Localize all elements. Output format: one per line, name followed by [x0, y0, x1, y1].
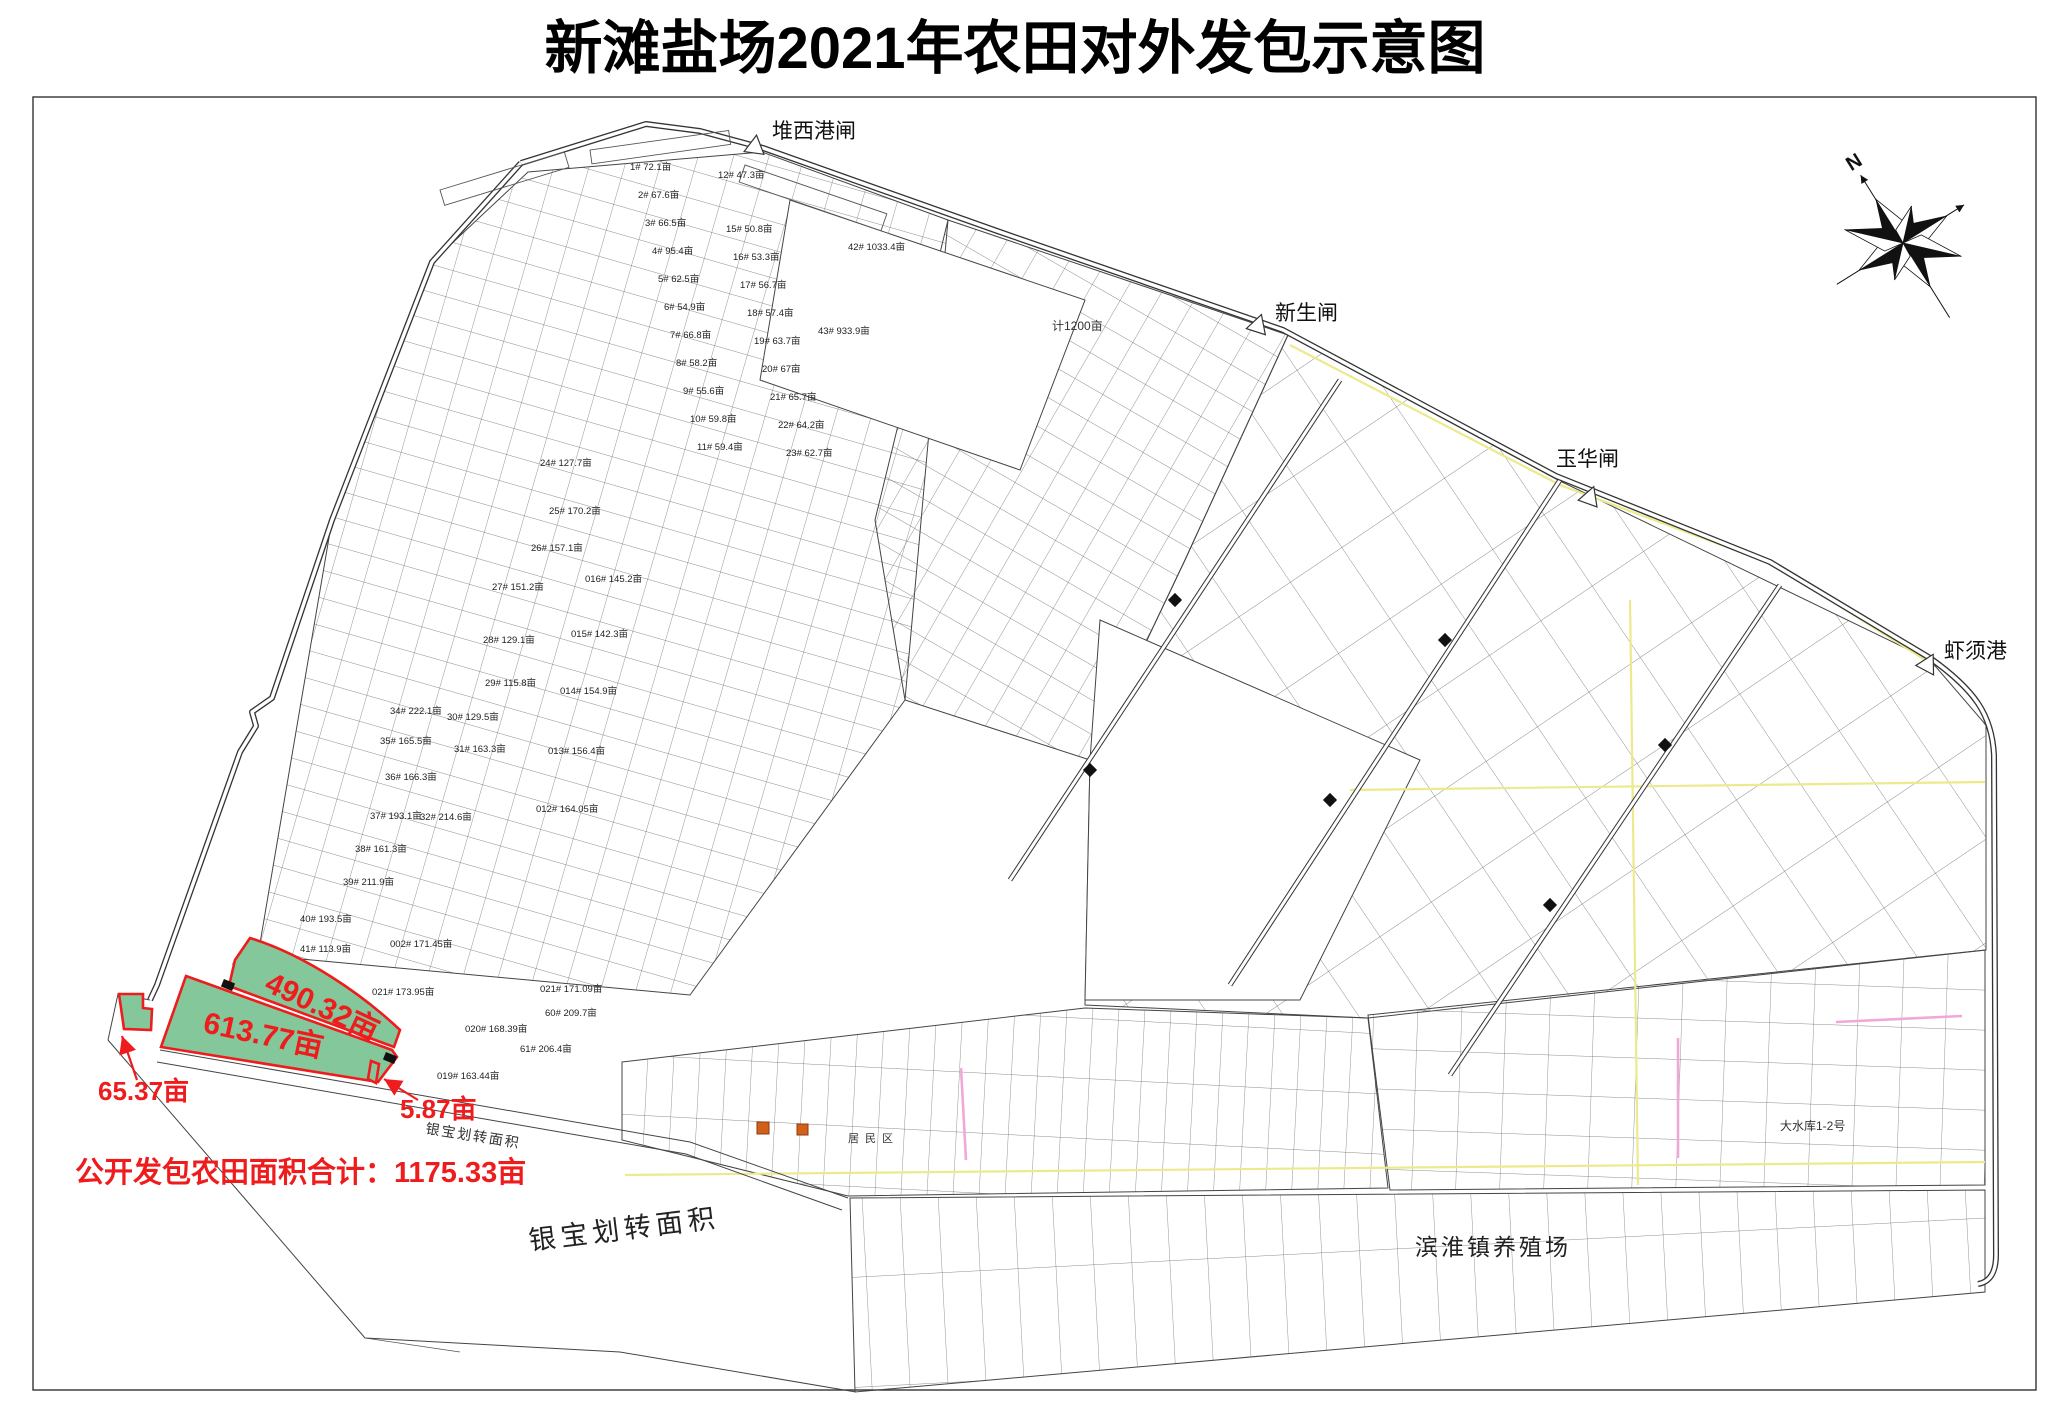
parcel-label: 021# 173.95亩 — [372, 986, 434, 998]
parcel-label: 27# 151.2亩 — [492, 581, 544, 593]
parcel-label: 10# 59.8亩 — [690, 413, 736, 425]
parcel-label: 21# 65.7亩 — [770, 391, 816, 403]
parcel-label: 28# 129.1亩 — [483, 634, 535, 646]
parcel-label: 12# 47.3亩 — [718, 169, 764, 181]
parcel-label: 3# 66.5亩 — [645, 217, 686, 229]
parcel-label: 60# 209.7亩 — [545, 1007, 597, 1019]
parcel-label: 31# 163.3亩 — [454, 743, 506, 755]
parcel-label: 29# 115.8亩 — [485, 677, 536, 689]
parcel-label: 30# 129.5亩 — [447, 711, 499, 723]
parcel-label: 20# 67亩 — [762, 363, 801, 375]
building-granary-icon — [797, 1124, 808, 1135]
parcel-label: 15# 50.8亩 — [726, 223, 772, 235]
parcel-label: 18# 57.4亩 — [747, 307, 793, 319]
parcel-label: 2# 67.6亩 — [638, 189, 679, 201]
parcel-label: 19# 63.7亩 — [754, 335, 800, 347]
area-label-5: 5.87亩 — [400, 1094, 477, 1124]
region-label-binhuai: 滨淮镇养殖场 — [1415, 1234, 1571, 1260]
parcel-label: 020# 168.39亩 — [465, 1023, 527, 1035]
parcel-label: 016# 145.2亩 — [585, 573, 642, 585]
parcel-label: 24# 127.7亩 — [540, 457, 592, 469]
parcel-label: 43# 933.9亩 — [818, 325, 870, 337]
parcel-label: 42# 1033.4亩 — [848, 241, 905, 253]
parcel-label: 26# 157.1亩 — [531, 542, 583, 554]
parcel-label: 16# 53.3亩 — [733, 251, 779, 263]
map-canvas: 新滩盐场2021年农田对外发包示意图 — [0, 0, 2069, 1417]
parcel-label: 015# 142.3亩 — [571, 628, 628, 640]
parcel-label: 37# 193.1亩 — [370, 810, 422, 822]
gate-label-yuhua: 玉华闸 — [1556, 448, 1619, 471]
gate-label-xiaxugang: 虾须港 — [1944, 640, 2007, 663]
green-parcel-5 — [368, 1061, 379, 1083]
parcel-label: 4# 95.4亩 — [652, 245, 693, 257]
parcel-label: 17# 56.7亩 — [740, 279, 786, 291]
parcel-label: 013# 156.4亩 — [548, 745, 605, 757]
parcel-label: 25# 170.2亩 — [549, 505, 601, 517]
parcel-label: 9# 55.6亩 — [683, 385, 724, 397]
page-title: 新滩盐场2021年农田对外发包示意图 — [544, 16, 1485, 81]
parcel-label: 38# 161.3亩 — [355, 843, 407, 855]
summary-total-label: 公开发包农田面积合计：1175.33亩 — [75, 1155, 526, 1189]
parcel-label: 35# 165.5亩 — [380, 735, 432, 747]
parcel-label: 39# 211.9亩 — [343, 876, 394, 888]
parcel-label: 012# 164.05亩 — [536, 803, 598, 815]
parcel-label: 40# 193.5亩 — [300, 913, 352, 925]
parcel-label: 8# 58.2亩 — [676, 357, 717, 369]
parcel-label: 002# 171.45亩 — [390, 938, 452, 950]
parcel-label: 11# 59.4亩 — [697, 441, 743, 453]
map-page: 新滩盐场2021年农田对外发包示意图 — [0, 0, 2069, 1417]
region-label-total1200: 计1200亩 — [1052, 318, 1103, 333]
gate-label-duixigang: 堆西港闸 — [772, 120, 856, 143]
parcel-label: 36# 166.3亩 — [385, 771, 437, 783]
parcel-label: 22# 64.2亩 — [778, 419, 824, 431]
parcel-label: 021# 171.09亩 — [540, 983, 602, 995]
region-label-reservoir: 大水库1-2号 — [1780, 1118, 1845, 1133]
gate-label-xinsheng: 新生闸 — [1275, 302, 1338, 325]
parcel-label: 019# 163.44亩 — [437, 1070, 499, 1082]
area-label-65: 65.37亩 — [98, 1076, 189, 1106]
parcel-label: 34# 222.1亩 — [390, 705, 442, 717]
parcel-label: 014# 154.9亩 — [560, 685, 617, 697]
region-label-juminqu: 居民区 — [848, 1133, 899, 1145]
parcel-label: 6# 54.9亩 — [664, 301, 705, 313]
parcel-label: 5# 62.5亩 — [658, 273, 699, 285]
parcel-label: 32# 214.6亩 — [420, 811, 472, 823]
parcel-label: 7# 66.8亩 — [670, 329, 711, 341]
parcel-label: 41# 113.9亩 — [300, 943, 351, 955]
parcel-label: 61# 206.4亩 — [520, 1043, 572, 1055]
parcel-label: 1# 72.1亩 — [630, 161, 671, 173]
building-school-icon — [757, 1122, 769, 1134]
parcel-label: 23# 62.7亩 — [786, 447, 832, 459]
